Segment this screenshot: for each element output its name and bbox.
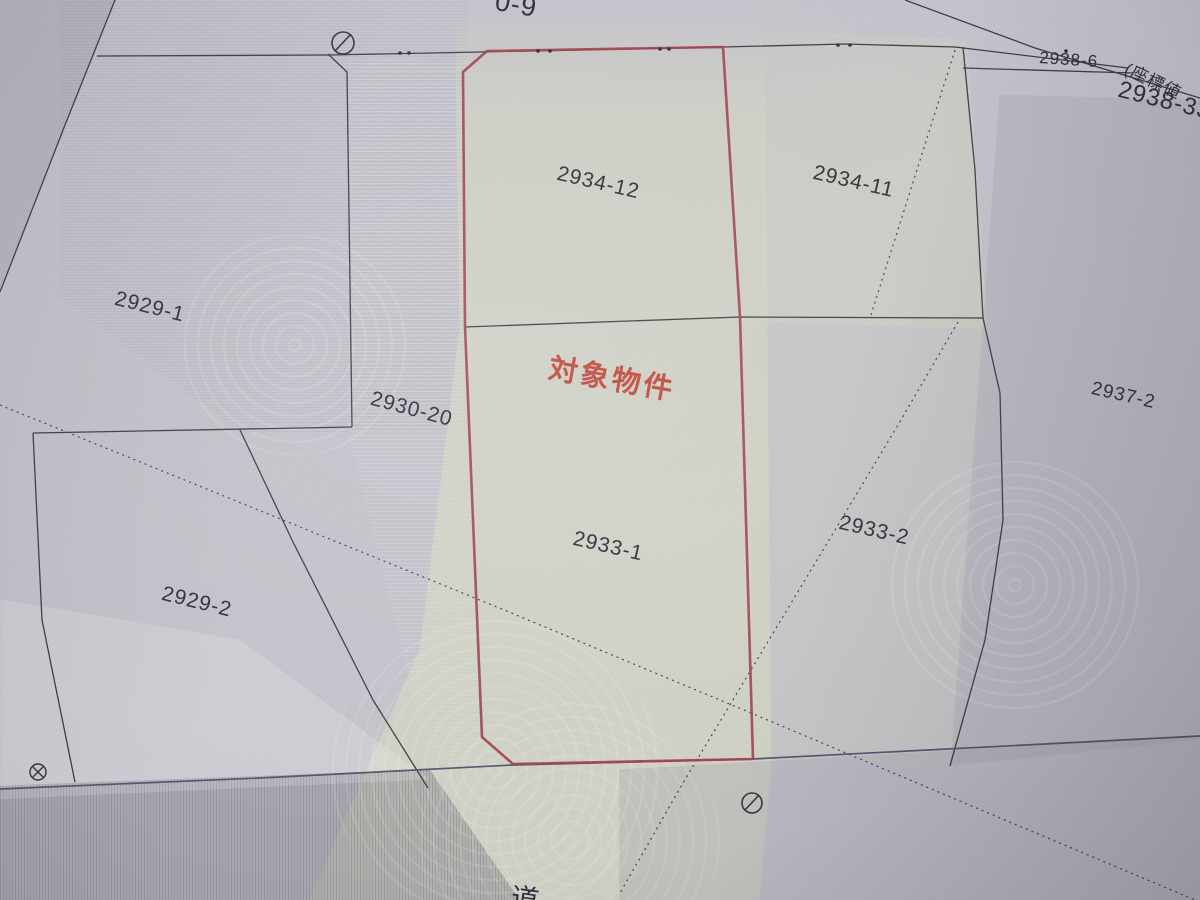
benchmark-circle-marker bbox=[30, 764, 46, 780]
target-parcel-red-outline bbox=[463, 47, 753, 764]
circle-slash-marker-bottom bbox=[742, 793, 762, 813]
circle-slash-marker-top bbox=[332, 32, 354, 54]
black-boundary-lines bbox=[0, 0, 1200, 788]
cadastral-map-photo: 0-9 2938-6 (座標値 2938-33 2934-12 2934-11 … bbox=[0, 0, 1200, 900]
dotted-boundary-lines bbox=[0, 50, 1195, 900]
map-line-work bbox=[0, 0, 1200, 900]
